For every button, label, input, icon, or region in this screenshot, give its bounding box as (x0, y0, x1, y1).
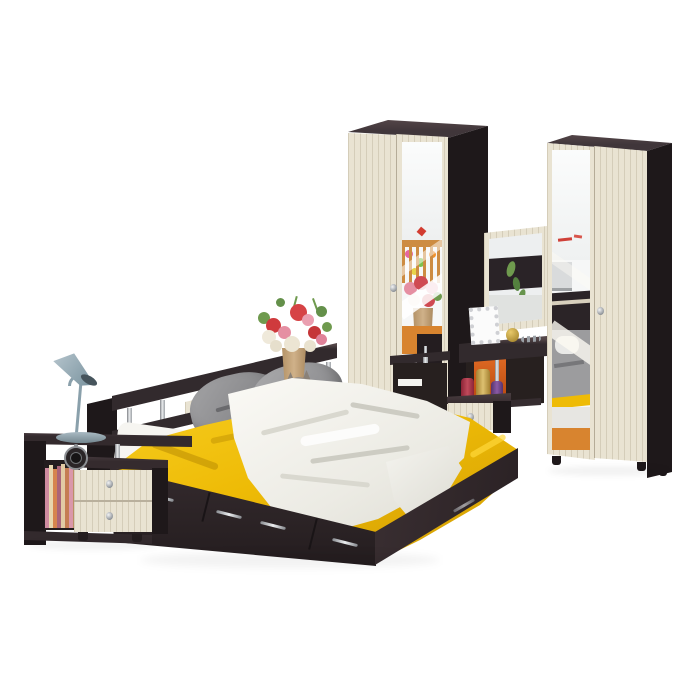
product-photo-bedroom-set (0, 0, 700, 700)
chest-drawer-divider (74, 500, 152, 502)
chest-side (152, 468, 168, 534)
floor-shadow (28, 540, 158, 550)
chest-knob-top (106, 480, 113, 488)
clock-face (70, 452, 82, 464)
table-lamp (50, 346, 110, 446)
lamp-stem (75, 382, 83, 438)
nightstand (0, 0, 700, 700)
nightstand-left-panel (24, 441, 46, 545)
lamp-base (56, 432, 106, 443)
floor-shadow (548, 466, 668, 476)
chest-knob-bottom (106, 512, 113, 520)
floor-shadow (140, 552, 440, 568)
alarm-clock (64, 444, 90, 472)
